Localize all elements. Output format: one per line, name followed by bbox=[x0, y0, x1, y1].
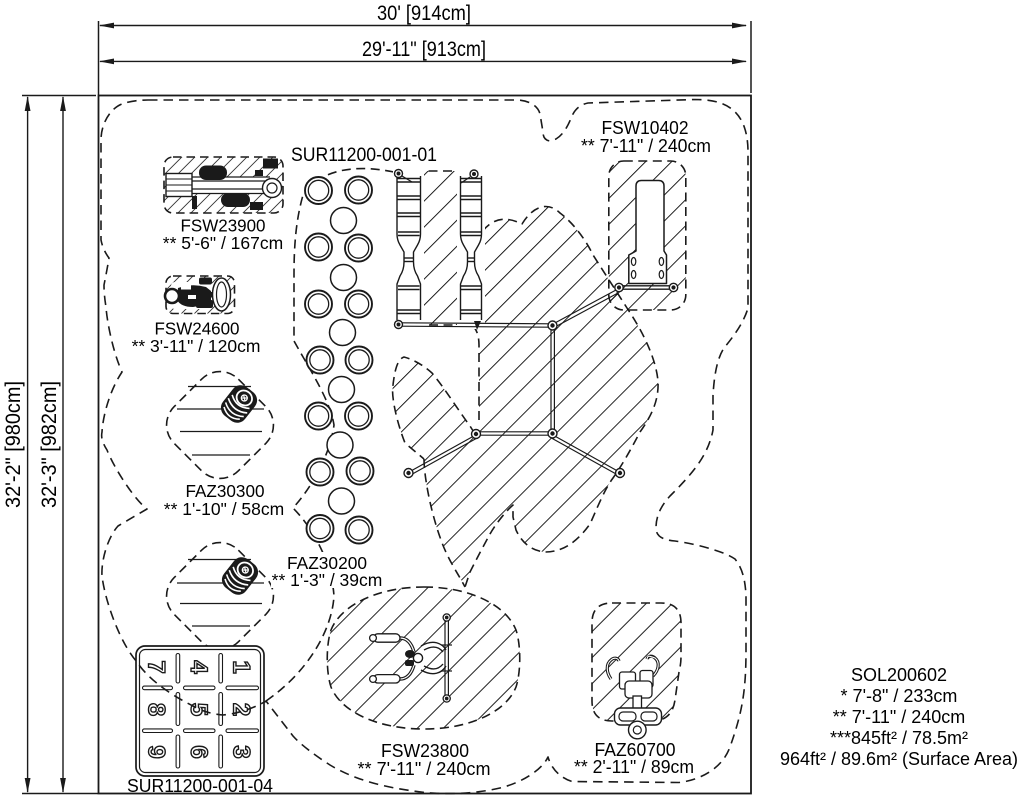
svg-text:9: 9 bbox=[143, 745, 170, 758]
svg-text:SOL200602: SOL200602 bbox=[851, 665, 947, 685]
svg-text:***845ft² / 78.5m²: ***845ft² / 78.5m² bbox=[830, 728, 968, 748]
svg-text:4: 4 bbox=[185, 660, 212, 674]
svg-text:30' [914cm]: 30' [914cm] bbox=[377, 1, 471, 25]
svg-text:** 7'-11" / 240cm: ** 7'-11" / 240cm bbox=[581, 135, 711, 156]
svg-text:7: 7 bbox=[143, 660, 170, 673]
svg-text:1: 1 bbox=[228, 660, 255, 673]
svg-text:FSW23800: FSW23800 bbox=[381, 741, 469, 761]
svg-text:32'-2" [980cm]: 32'-2" [980cm] bbox=[1, 381, 25, 508]
svg-text:29'-11" [913cm]: 29'-11" [913cm] bbox=[362, 37, 486, 61]
svg-text:FAZ30300: FAZ30300 bbox=[186, 481, 265, 501]
svg-text:32'-3" [982cm]: 32'-3" [982cm] bbox=[37, 381, 61, 508]
svg-text:3: 3 bbox=[228, 745, 255, 758]
svg-text:** 3'-11" / 120cm: ** 3'-11" / 120cm bbox=[132, 336, 261, 356]
svg-text:SUR11200-001-04: SUR11200-001-04 bbox=[127, 776, 273, 796]
svg-text:** 5'-6" / 167cm: ** 5'-6" / 167cm bbox=[163, 233, 283, 253]
svg-text:964ft² / 89.6m² (Surface Area): 964ft² / 89.6m² (Surface Area) bbox=[780, 749, 1018, 769]
svg-text:6: 6 bbox=[185, 745, 212, 758]
svg-text:8: 8 bbox=[143, 703, 170, 716]
svg-text:** 7'-11" / 240cm: ** 7'-11" / 240cm bbox=[358, 759, 491, 779]
svg-text:** 7'-11" / 240cm: ** 7'-11" / 240cm bbox=[833, 707, 966, 727]
svg-text:* 7'-8" / 233cm: * 7'-8" / 233cm bbox=[841, 686, 958, 706]
svg-text:** 1'-3" / 39cm: ** 1'-3" / 39cm bbox=[272, 570, 383, 590]
svg-text:** 2'-11" / 89cm: ** 2'-11" / 89cm bbox=[574, 757, 694, 777]
svg-text:** 1'-10" / 58cm: ** 1'-10" / 58cm bbox=[164, 499, 284, 519]
svg-text:SUR11200-001-01: SUR11200-001-01 bbox=[291, 144, 437, 166]
